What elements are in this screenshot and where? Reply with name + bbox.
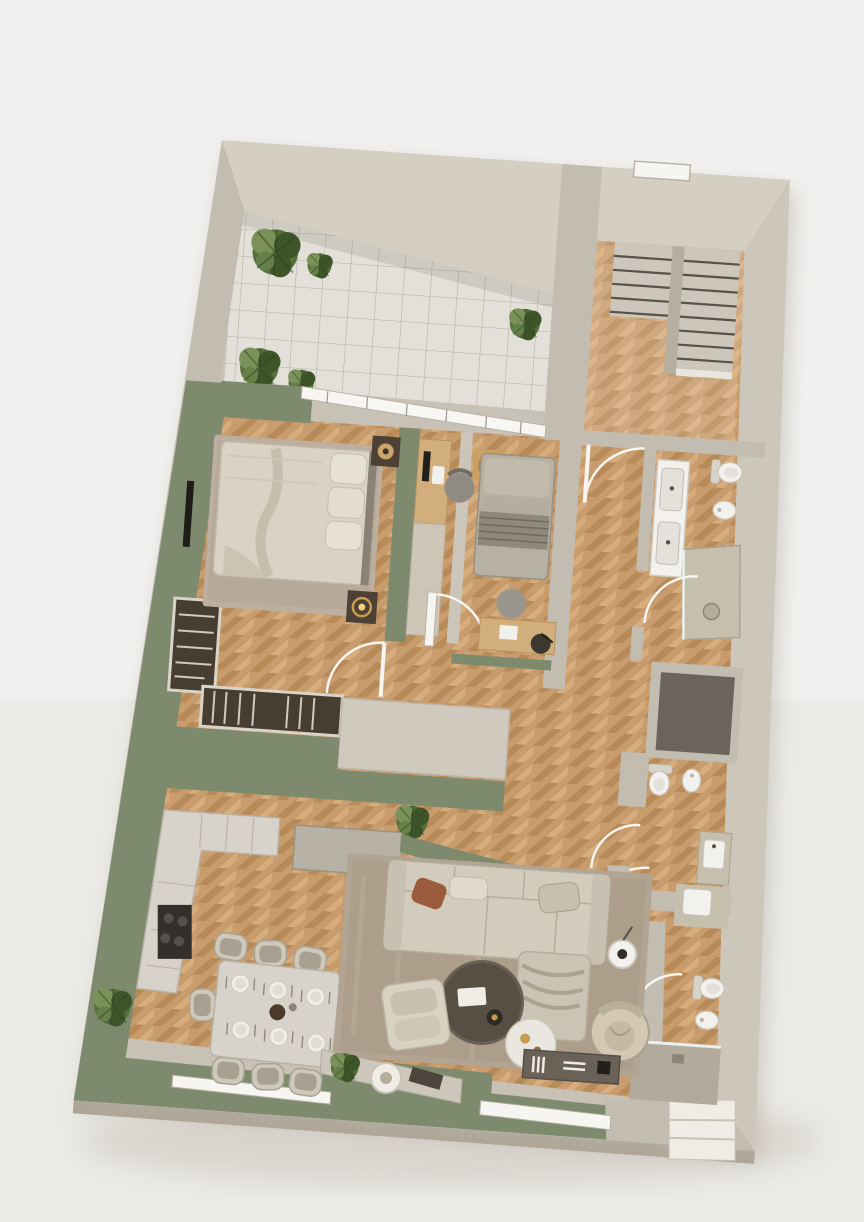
service-shaft	[645, 661, 743, 763]
dining-chair	[211, 1056, 246, 1085]
bathroom2-wall-block	[618, 752, 650, 808]
dining-chair	[190, 989, 216, 1021]
pillow	[329, 453, 367, 485]
storage-block	[338, 698, 510, 780]
shower-1	[677, 541, 746, 643]
textured-pillow	[538, 882, 581, 914]
nightstand-top	[371, 435, 401, 467]
double-bed	[213, 441, 378, 586]
floorplan-render	[0, 0, 864, 1222]
entry-door	[633, 161, 690, 181]
bedroom-north-green-wall	[219, 381, 313, 423]
cooktop	[154, 903, 196, 962]
media-console	[522, 1050, 620, 1085]
dining-chair	[288, 1067, 323, 1097]
notebook	[432, 466, 445, 485]
lounge-chair	[380, 978, 451, 1052]
speaker	[597, 1061, 611, 1075]
dining-chair	[254, 940, 286, 967]
daybed-pillow	[483, 457, 551, 498]
pillow	[327, 487, 365, 519]
dining-chair	[213, 931, 249, 962]
nightstand-bottom	[346, 590, 378, 624]
pillow	[449, 876, 488, 901]
coffee-table-books	[457, 987, 486, 1007]
screenshot-root	[0, 0, 864, 1222]
entry-steps	[665, 1096, 739, 1164]
daybed	[473, 453, 555, 580]
basin	[682, 888, 712, 916]
pillow	[325, 520, 363, 550]
dining-chair	[252, 1064, 284, 1090]
laptop	[499, 625, 518, 640]
daybed-blanket	[477, 511, 549, 550]
basin-niche	[696, 831, 732, 885]
